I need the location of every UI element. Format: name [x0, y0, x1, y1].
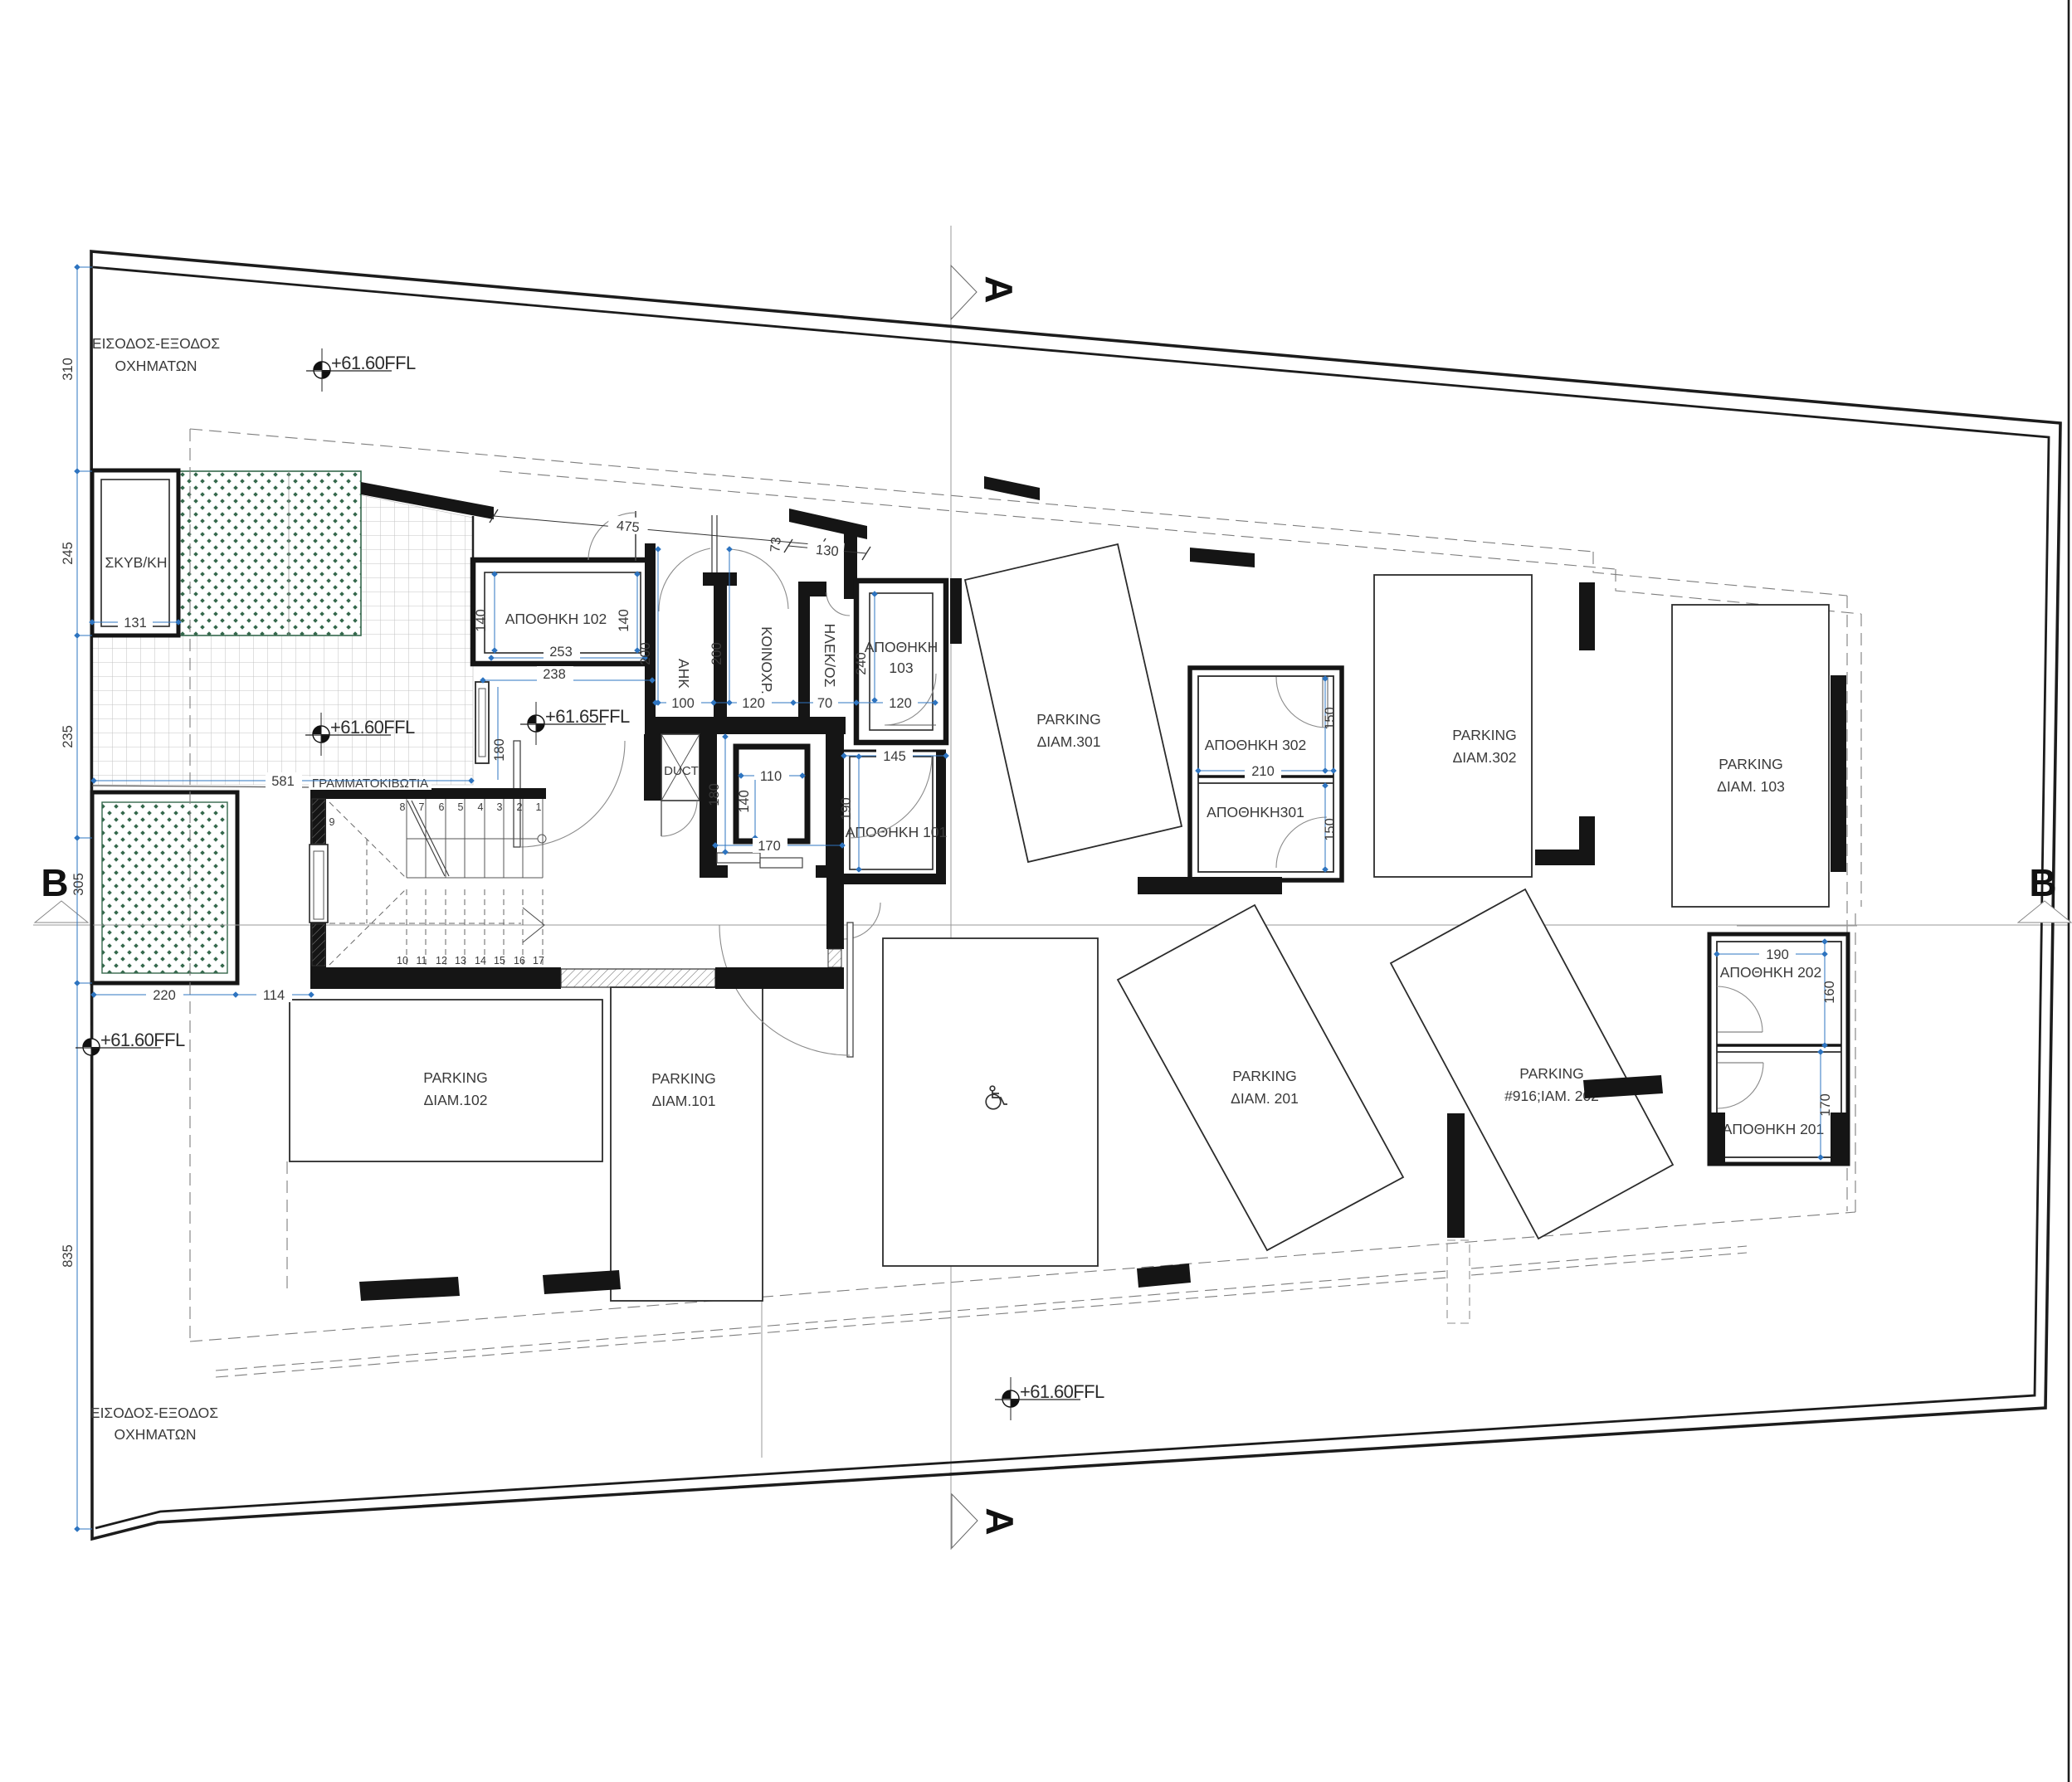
svg-text:140: 140: [474, 609, 489, 632]
svg-text:238: 238: [543, 667, 566, 682]
svg-text:A: A: [977, 275, 1021, 303]
svg-text:10: 10: [397, 955, 408, 966]
svg-text:ΑΠΟΘΗΚΗ 202: ΑΠΟΘΗΚΗ 202: [1720, 964, 1822, 981]
svg-text:ΔIAM. 201: ΔIAM. 201: [1231, 1090, 1299, 1107]
svg-text:180: 180: [707, 783, 722, 806]
svg-text:220: 220: [153, 988, 176, 1003]
svg-text:ΔIAM.101: ΔIAM.101: [652, 1093, 716, 1109]
svg-text:A: A: [978, 1507, 1021, 1535]
svg-text:150: 150: [1323, 707, 1338, 730]
svg-text:140: 140: [737, 790, 752, 813]
svg-text:B: B: [41, 861, 68, 904]
svg-text:ΑΠΟΘΗΚΗ: ΑΠΟΘΗΚΗ: [865, 639, 938, 655]
svg-text:PARKING: PARKING: [1036, 711, 1100, 728]
svg-text:190: 190: [1766, 947, 1789, 962]
svg-text:ΕΙΣΟΔΟΣ-ΕΞΟΔΟΣ: ΕΙΣΟΔΟΣ-ΕΞΟΔΟΣ: [90, 1405, 218, 1421]
svg-text:305: 305: [71, 873, 86, 896]
svg-text:15: 15: [494, 955, 505, 966]
svg-text:+61.60FFL: +61.60FFL: [330, 717, 415, 738]
svg-text:13: 13: [455, 955, 466, 966]
svg-text:145: 145: [883, 749, 906, 764]
svg-text:70: 70: [817, 696, 832, 711]
svg-text:+61.60FFL: +61.60FFL: [1020, 1381, 1104, 1402]
svg-text:ΟΧΗΜΑΤΩΝ: ΟΧΗΜΑΤΩΝ: [115, 358, 197, 374]
svg-text:11: 11: [417, 955, 427, 966]
svg-text:110: 110: [760, 769, 782, 784]
svg-text:ΔIAM. 103: ΔIAM. 103: [1717, 778, 1785, 795]
svg-text:ΚΟΙΝΟΧΡ.: ΚΟΙΝΟΧΡ.: [758, 626, 775, 694]
svg-text:8: 8: [400, 801, 406, 813]
svg-text:+61.60FFL: +61.60FFL: [100, 1030, 185, 1050]
svg-text:1: 1: [536, 801, 542, 813]
svg-text:PARKING: PARKING: [1719, 756, 1782, 772]
svg-text:200: 200: [638, 642, 653, 665]
svg-text:180: 180: [492, 738, 507, 762]
svg-text:ΕΙΣΟΔΟΣ-ΕΞΟΔΟΣ: ΕΙΣΟΔΟΣ-ΕΞΟΔΟΣ: [92, 335, 220, 352]
svg-text:190: 190: [839, 797, 854, 820]
svg-text:581: 581: [271, 774, 295, 789]
svg-text:ΓΡΑΜΜΑΤΟΚΙΒΩΤΙΑ: ΓΡΑΜΜΑΤΟΚΙΒΩΤΙΑ: [312, 777, 428, 791]
svg-text:253: 253: [549, 645, 573, 660]
svg-text:ΑΠΟΘΗΚΗ 102: ΑΠΟΘΗΚΗ 102: [505, 611, 607, 627]
svg-text:131: 131: [124, 616, 147, 631]
svg-text:310: 310: [61, 358, 76, 381]
svg-text:200: 200: [709, 642, 724, 665]
svg-text:835: 835: [61, 1244, 76, 1268]
svg-text:ΗΛΕΚ/ΟΣ: ΗΛΕΚ/ΟΣ: [821, 624, 838, 688]
svg-text:ΑΠΟΘΗΚΗ 302: ΑΠΟΘΗΚΗ 302: [1205, 737, 1307, 753]
svg-text:ΔIAM.302: ΔIAM.302: [1453, 749, 1517, 766]
svg-text:235: 235: [61, 725, 76, 748]
svg-text:100: 100: [671, 696, 695, 711]
svg-text:PARKING: PARKING: [1452, 727, 1516, 743]
svg-text:120: 120: [889, 696, 912, 711]
svg-text:9: 9: [329, 816, 335, 828]
svg-text:ΑΠΟΘΗΚΗ301: ΑΠΟΘΗΚΗ301: [1207, 804, 1304, 820]
svg-text:4: 4: [478, 801, 484, 813]
svg-text:PARKING: PARKING: [423, 1069, 487, 1086]
svg-text:240: 240: [854, 652, 869, 675]
svg-text:160: 160: [1822, 981, 1837, 1004]
svg-text:7: 7: [419, 801, 425, 813]
svg-text:6: 6: [439, 801, 445, 813]
svg-text:ΣΚΥΒ/ΚΗ: ΣΚΥΒ/ΚΗ: [105, 554, 167, 571]
svg-text:475: 475: [616, 519, 640, 535]
svg-text:ΑΠΟΘΗΚΗ 201: ΑΠΟΘΗΚΗ 201: [1723, 1121, 1825, 1137]
svg-text:5: 5: [458, 801, 464, 813]
svg-text:120: 120: [742, 696, 765, 711]
svg-text:130: 130: [815, 543, 839, 559]
svg-text:103: 103: [889, 660, 913, 676]
svg-text:PARKING: PARKING: [1519, 1065, 1583, 1082]
svg-text:170: 170: [758, 839, 781, 854]
svg-text:PARKING: PARKING: [651, 1070, 715, 1087]
svg-text:150: 150: [1323, 818, 1338, 841]
svg-text:210: 210: [1251, 764, 1275, 779]
svg-text:3: 3: [497, 801, 503, 813]
svg-text:ΔIAM.102: ΔIAM.102: [424, 1092, 488, 1108]
svg-text:170: 170: [1818, 1093, 1833, 1117]
svg-text:+61.65FFL: +61.65FFL: [545, 706, 630, 727]
svg-text:PARKING: PARKING: [1232, 1068, 1296, 1084]
svg-text:73: 73: [768, 537, 784, 553]
svg-text:ΑΠΟΘΗΚΗ 101: ΑΠΟΘΗΚΗ 101: [846, 824, 948, 840]
svg-text:17: 17: [533, 955, 544, 966]
svg-text:2: 2: [517, 801, 523, 813]
svg-text:DUCT: DUCT: [664, 764, 699, 778]
svg-text:B: B: [2029, 861, 2056, 904]
svg-text:+61.60FFL: +61.60FFL: [331, 353, 416, 373]
svg-text:ΔIAM.301: ΔIAM.301: [1037, 733, 1101, 750]
svg-text:12: 12: [436, 955, 447, 966]
svg-text:14: 14: [475, 955, 486, 966]
svg-text:114: 114: [263, 988, 285, 1003]
svg-text:140: 140: [617, 609, 631, 632]
svg-text:245: 245: [61, 542, 76, 565]
svg-text:16: 16: [514, 955, 525, 966]
svg-text:ΟΧΗΜΑΤΩΝ: ΟΧΗΜΑΤΩΝ: [115, 1426, 197, 1443]
svg-text:ΑΗΚ: ΑΗΚ: [675, 659, 692, 689]
